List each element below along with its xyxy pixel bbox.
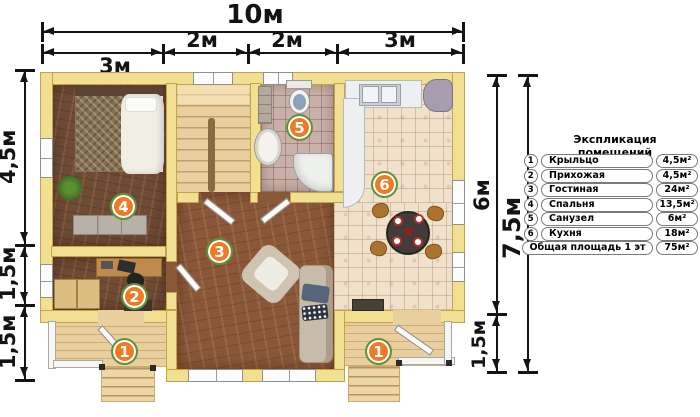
legend-row-name: Санузел — [541, 212, 653, 226]
dim-left-seg-3: 1,5м — [0, 313, 26, 371]
legend-row-area: 4,5м² — [656, 154, 698, 168]
room-badge-porch-right: 1 — [365, 338, 392, 365]
staircase-landing — [178, 84, 249, 104]
arrow-icon — [20, 72, 28, 82]
bed-blanket — [75, 96, 127, 172]
arrow-icon — [523, 359, 531, 369]
arrow-icon — [339, 48, 349, 56]
dim-right-seg-1: 6м — [470, 168, 498, 223]
legend-row-num: 6 — [524, 227, 538, 241]
legend-row-area: 4,5м² — [656, 169, 698, 183]
legend-row-area: 13,5м² — [656, 198, 698, 212]
kitchen-counter-left — [343, 98, 365, 208]
window-kitchen-right-1 — [452, 180, 465, 225]
kitchen-sink-basin — [381, 86, 397, 103]
shoe-bench — [54, 279, 100, 309]
legend-row-num: 5 — [524, 212, 538, 226]
plate — [392, 236, 402, 246]
floor-hatch — [352, 299, 384, 311]
legend-row-area: 24м² — [656, 183, 698, 197]
wall-bathroom-bottom-b — [290, 192, 345, 203]
legend-row-name: Крыльцо — [541, 154, 653, 168]
railing — [444, 321, 452, 365]
window-dining-right — [452, 252, 465, 282]
porch-right-steps — [348, 366, 400, 402]
room-badge-kitchen: 6 — [371, 171, 398, 198]
doorway-left-entrance — [98, 310, 144, 323]
dim-top-total: 10м — [215, 0, 295, 30]
wall-bedroom-hallway — [51, 246, 166, 257]
legend-total-name: Общая площадь 1 эт — [522, 241, 653, 255]
window-bedroom — [40, 138, 53, 178]
window-living-bottom-1 — [188, 369, 243, 382]
serving-dish — [404, 227, 413, 236]
arrow-icon — [492, 77, 500, 87]
bathroom-sink — [254, 128, 282, 166]
arrow-icon — [165, 48, 175, 56]
kitchen-sink-basin — [362, 86, 379, 103]
sofa-pillow — [301, 283, 330, 304]
dim-top-seg-2: 2м — [177, 28, 227, 52]
legend-row-name: Спальня — [541, 198, 653, 212]
wall-bedroom-stairs — [166, 83, 177, 262]
dim-top-seg-4: 3м — [375, 28, 425, 52]
dim-tick — [462, 22, 465, 42]
railing — [53, 360, 103, 368]
legend-row-num: 4 — [524, 198, 538, 212]
armchair-cushion — [252, 254, 291, 293]
dim-left-seg-2: 1,5м — [0, 245, 26, 303]
arrow-icon — [523, 77, 531, 87]
arrow-icon — [250, 48, 260, 56]
toilet-seat — [293, 94, 306, 110]
dresser — [73, 215, 147, 235]
dim-tick — [462, 44, 465, 64]
toilet-tank — [286, 80, 312, 89]
arrow-icon — [452, 27, 462, 35]
plate — [414, 214, 424, 224]
railing-post — [150, 365, 156, 371]
desk-item — [101, 261, 113, 269]
window-hallway — [40, 264, 53, 298]
wall-bathroom-bottom-a — [250, 192, 258, 203]
legend-row-area: 18м² — [656, 227, 698, 241]
window-living-bottom-2 — [262, 369, 316, 382]
arrow-icon — [236, 48, 246, 56]
railing-post — [99, 364, 105, 370]
window-staircase-top — [193, 72, 233, 85]
dim-tick — [15, 379, 35, 382]
wall-hallway-living — [166, 292, 177, 310]
legend-total-area: 75м² — [656, 241, 698, 255]
legend-row-num: 1 — [524, 154, 538, 168]
arrow-icon — [451, 48, 461, 56]
bathroom-shelf — [258, 86, 272, 124]
legend-row-name: Гостиная — [541, 183, 653, 197]
plate — [393, 216, 403, 226]
legend-row-num: 3 — [524, 183, 538, 197]
bed-pillow — [125, 97, 157, 112]
legend-row-num: 2 — [524, 169, 538, 183]
legend-row-name: Кухня — [541, 227, 653, 241]
railing-post — [446, 360, 452, 366]
sofa-pillow — [301, 304, 328, 322]
room-badge-living: 3 — [206, 238, 233, 265]
arrow-icon — [20, 232, 28, 242]
dim-left-seg-1: 4,5м — [0, 126, 26, 188]
porch-left-steps — [101, 367, 155, 402]
dim-right-seg-2: 1,5м — [468, 316, 496, 372]
dim-top-seg-3: 2м — [262, 28, 312, 52]
arrow-icon — [44, 27, 54, 35]
wall-stairs-stub — [177, 192, 199, 203]
railing-post — [396, 360, 402, 366]
legend-row-name: Прихожая — [541, 169, 653, 183]
arrow-icon — [151, 48, 161, 56]
dim-tick — [518, 371, 538, 374]
staircase-rail — [208, 118, 215, 192]
plant — [58, 176, 82, 200]
kitchen-corner-seat — [423, 79, 453, 112]
room-badge-bathroom: 5 — [286, 114, 313, 141]
arrow-icon — [492, 301, 500, 311]
doorway-right-entrance — [393, 310, 441, 323]
plate — [413, 237, 423, 247]
room-badge-bedroom: 4 — [110, 193, 137, 220]
legend-row-area: 6м² — [656, 212, 698, 226]
arrow-icon — [44, 48, 54, 56]
arrow-icon — [325, 48, 335, 56]
room-badge-hallway: 2 — [121, 283, 148, 310]
room-badge-porch-left: 1 — [111, 338, 138, 365]
floor-plan-canvas: 10м 3м 2м 2м 3м 4,5м 1,5м 1,5м 6м 1,5м 7… — [0, 0, 700, 417]
